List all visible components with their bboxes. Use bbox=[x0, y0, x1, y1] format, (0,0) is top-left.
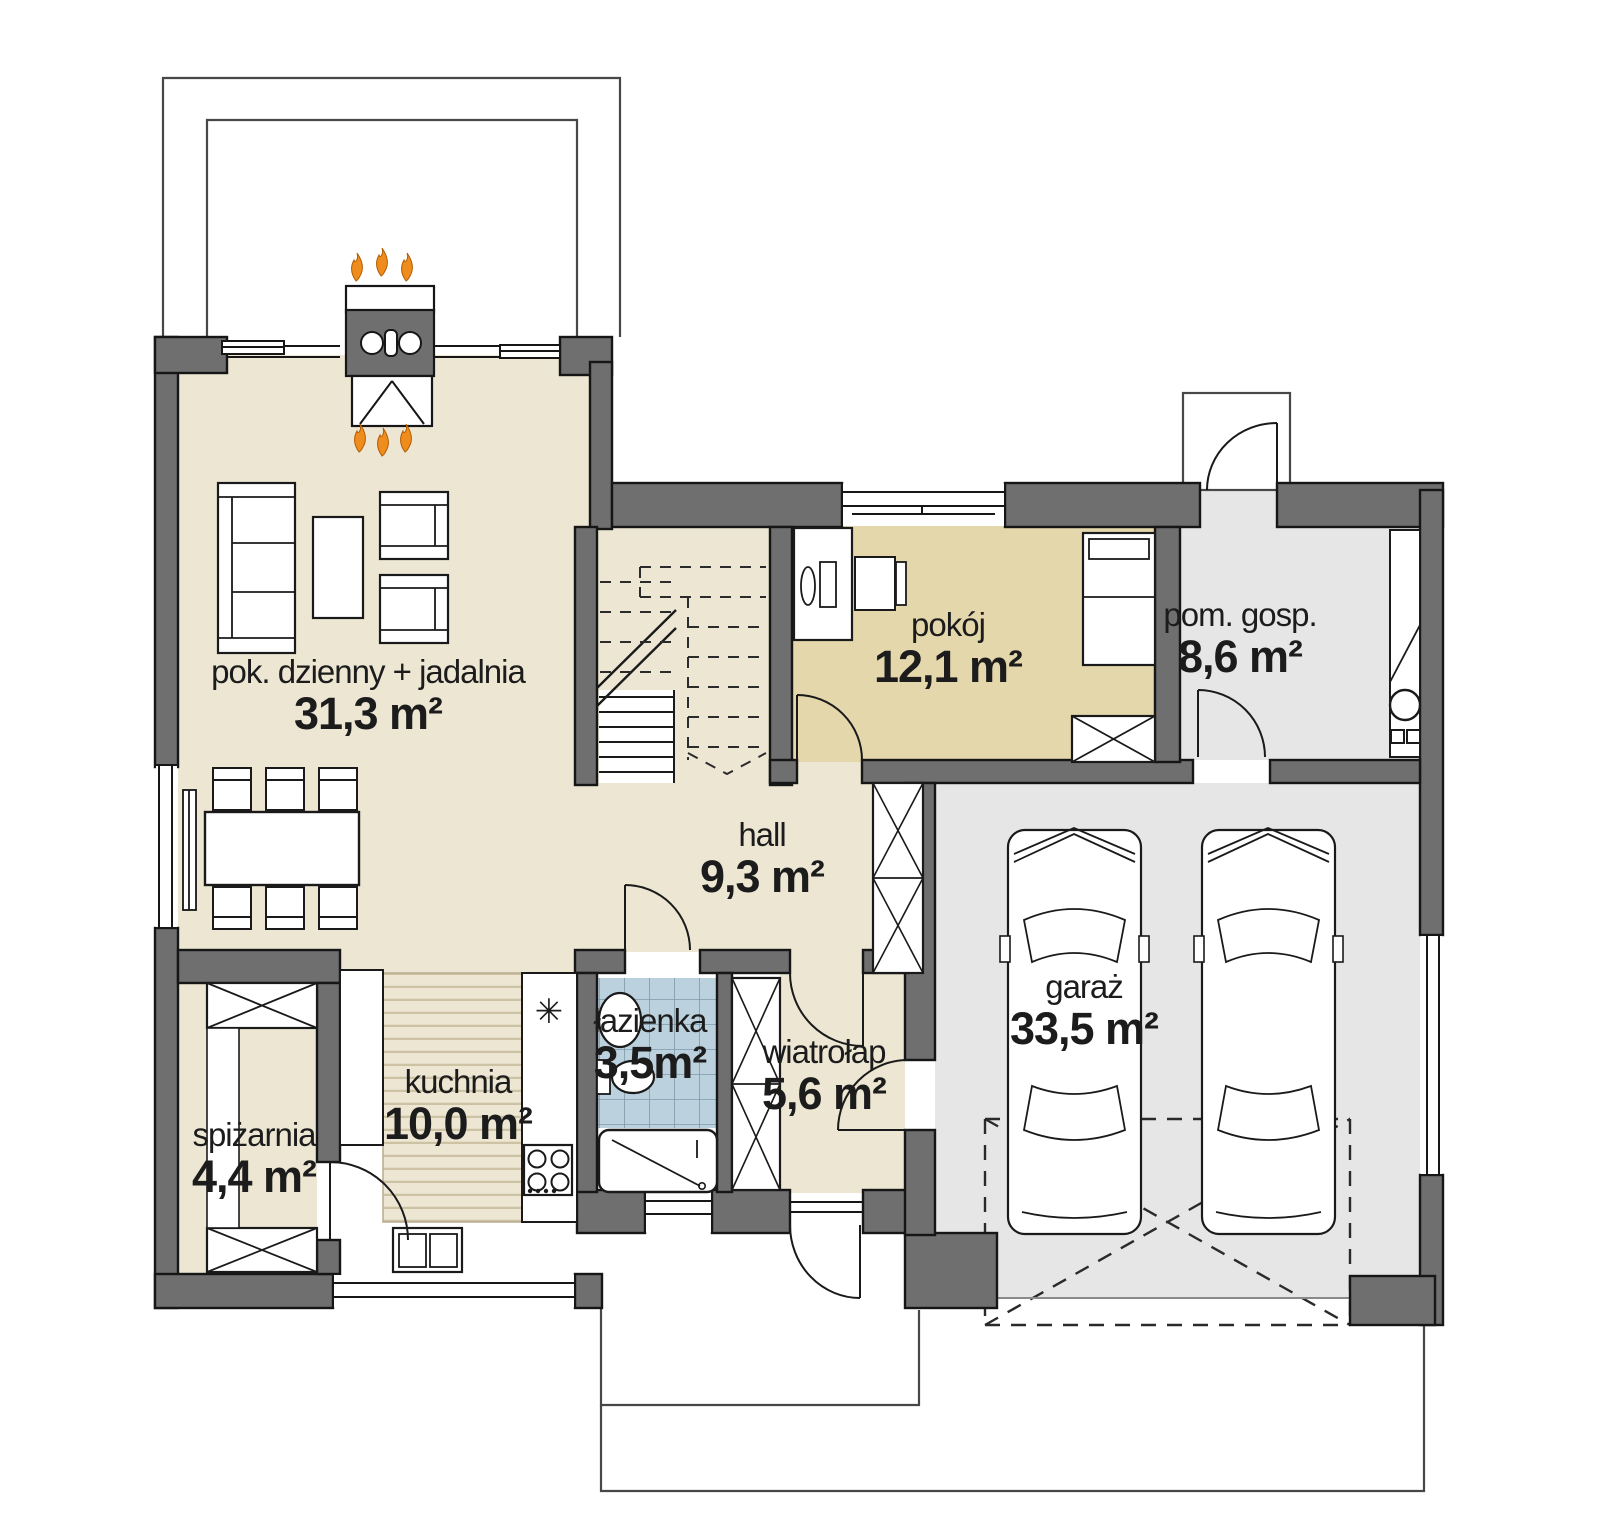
window-kitchen-bottom bbox=[333, 1275, 575, 1307]
wall bbox=[905, 1233, 997, 1308]
wall bbox=[862, 760, 1193, 783]
wall bbox=[770, 760, 797, 783]
boiler-icon bbox=[1390, 690, 1420, 720]
floor-plan-drawing bbox=[0, 0, 1601, 1534]
wall bbox=[178, 950, 340, 983]
wall bbox=[1155, 527, 1180, 762]
wall bbox=[770, 527, 792, 785]
wall bbox=[575, 1274, 602, 1308]
wall bbox=[155, 337, 178, 767]
stove-icon bbox=[524, 1145, 572, 1195]
wall bbox=[155, 337, 227, 373]
wall bbox=[700, 950, 790, 973]
entrance-porch-outline bbox=[601, 1308, 1424, 1491]
window-bath-bottom bbox=[645, 1191, 712, 1232]
room-floor-kitchen bbox=[383, 973, 522, 1222]
wall bbox=[1350, 1276, 1435, 1325]
wall bbox=[155, 928, 178, 1308]
wall bbox=[905, 1130, 935, 1235]
entrance-threshold bbox=[790, 1202, 863, 1212]
wardrobe-icon bbox=[1072, 716, 1155, 762]
window-garage-right bbox=[1421, 935, 1443, 1175]
door-entrance bbox=[790, 1225, 860, 1298]
armchair-icon bbox=[380, 492, 448, 559]
room-floor-hall bbox=[590, 755, 905, 952]
side-porch-outline bbox=[1183, 393, 1290, 490]
wall bbox=[317, 1240, 340, 1274]
kitchen-sink-cabinet-icon bbox=[393, 1228, 462, 1272]
floor-plan: pok. dzienny + jadalnia 31,3 m² pokój 12… bbox=[0, 0, 1601, 1534]
toilet-icon bbox=[597, 1060, 654, 1094]
bed-icon bbox=[1083, 533, 1155, 665]
armchair-icon bbox=[380, 575, 448, 643]
kitchen-island-icon bbox=[340, 970, 383, 1145]
radiator-icon bbox=[183, 790, 196, 910]
wardrobe-icon bbox=[873, 783, 923, 973]
wall bbox=[717, 973, 732, 1192]
wall bbox=[1277, 483, 1443, 527]
wall bbox=[590, 362, 612, 529]
wall bbox=[612, 483, 842, 527]
wall bbox=[155, 1274, 333, 1308]
fireplace-icon bbox=[346, 248, 434, 456]
shower-icon bbox=[599, 1130, 717, 1192]
wall bbox=[577, 1190, 645, 1233]
wardrobe-icon bbox=[732, 978, 780, 1190]
room-floor-pom-gosp bbox=[1180, 527, 1420, 760]
room-floor-wiatrolap bbox=[780, 950, 905, 1193]
wall bbox=[577, 973, 597, 1192]
wall bbox=[575, 527, 597, 785]
car-icon bbox=[1194, 828, 1343, 1234]
dining-set-icon bbox=[205, 768, 359, 929]
sofa-icon bbox=[218, 483, 295, 653]
door-pomgosp-entrance bbox=[1207, 423, 1277, 490]
utility-counter-icon bbox=[1390, 530, 1420, 757]
wall bbox=[1420, 490, 1443, 935]
coffee-table-icon bbox=[313, 517, 363, 618]
wall bbox=[317, 983, 340, 1162]
wall bbox=[712, 1190, 790, 1233]
wall bbox=[1270, 760, 1420, 783]
car-icon bbox=[1000, 828, 1149, 1234]
window-living-left bbox=[156, 765, 178, 928]
window-pokoj-top bbox=[842, 484, 1005, 526]
wall bbox=[575, 950, 625, 973]
wall bbox=[1005, 483, 1200, 527]
